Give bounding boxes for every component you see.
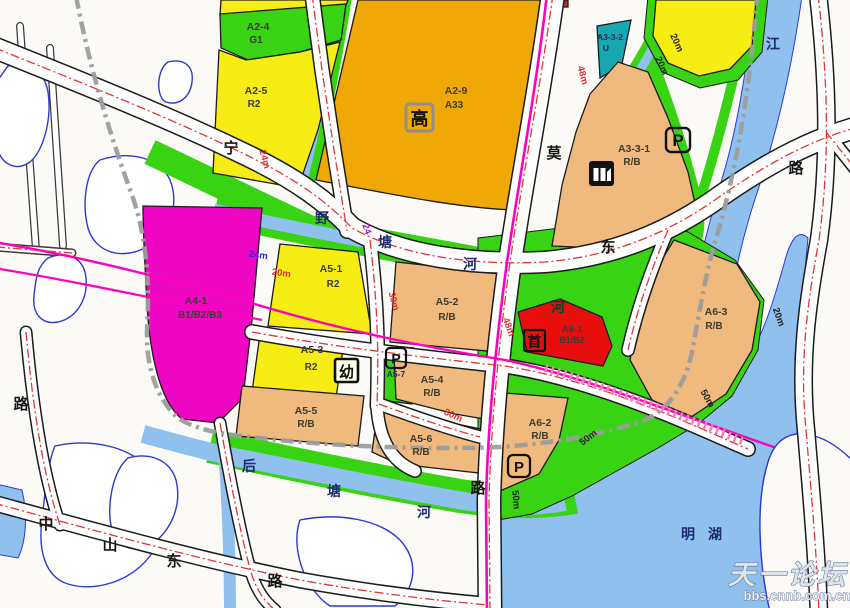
kindergarten-icon: 幼 xyxy=(335,359,358,382)
river-name-char: 河 xyxy=(551,299,565,315)
svg-text:P: P xyxy=(672,131,683,150)
parcel-use: R2 xyxy=(327,279,340,290)
parcel-label: A4-1 xyxy=(185,295,208,307)
lake-name-char: 明 xyxy=(681,526,695,542)
road-name-char: 路 xyxy=(788,159,804,177)
river-name-char: 野 xyxy=(315,210,329,226)
parcel-use: R/B xyxy=(423,388,440,399)
river-name-char: 塘 xyxy=(327,483,341,499)
parcel-label: A6-2 xyxy=(529,417,552,429)
road-name-char: 东 xyxy=(166,552,181,570)
parcel-use: R2 xyxy=(248,99,261,110)
parcel-label: A5-7 xyxy=(387,369,406,379)
road-name-char: 莫 xyxy=(546,144,562,162)
parcel-label: A3-3-2 xyxy=(597,32,623,42)
watermark-site-name: 天一论坛 xyxy=(728,560,848,590)
map-canvas: 高 P 幼 P 首 P A2-4 G1 xyxy=(0,0,850,608)
parcel-label: A2-5 xyxy=(245,85,268,97)
parcel-use: R/B xyxy=(705,321,722,332)
parcel-label: A6-3 xyxy=(705,306,728,318)
parcel-label: A5-5 xyxy=(295,405,318,417)
road-name-char: 路 xyxy=(470,479,486,497)
parcel-use: R/B xyxy=(438,312,455,323)
svg-text:高: 高 xyxy=(411,108,429,129)
river-name-char: 江 xyxy=(766,36,780,52)
svg-text:P: P xyxy=(391,351,400,367)
parcel-use: B1/B2 xyxy=(559,335,585,345)
svg-text:P: P xyxy=(514,459,524,476)
parcel-label: A5-4 xyxy=(421,374,444,386)
parcel-label: A2-9 xyxy=(445,85,468,97)
parcel-use: B1/B2/B3 xyxy=(178,310,222,321)
parcel-use: R/B xyxy=(412,447,429,458)
river-name-char: 后 xyxy=(242,458,256,474)
parcel-label: A2-4 xyxy=(247,21,270,33)
svg-text:首: 首 xyxy=(528,334,542,350)
parcel-use: G1 xyxy=(249,35,263,46)
parcel-label: A5-2 xyxy=(436,296,459,308)
river-name-char: 塘 xyxy=(378,234,392,250)
parcel-label: A5-3 xyxy=(301,344,324,356)
parcel-use: R/B xyxy=(623,157,640,168)
parcel-use: R2 xyxy=(305,362,318,373)
road-name-char: 路 xyxy=(13,395,29,413)
width-marker: 50m xyxy=(509,490,522,510)
watermark-site-url: bbs.cnnb.com.cn xyxy=(744,588,850,603)
watermark: 天一论坛 bbs.cnnb.com.cn xyxy=(728,560,850,603)
parcel-label: A6-1 xyxy=(562,324,583,335)
parcel-use: R/B xyxy=(531,431,548,442)
parcel-use: U xyxy=(603,43,609,53)
lake-name-char: 湖 xyxy=(708,526,722,542)
parcel-label: A5-1 xyxy=(320,263,343,275)
water-patch-left xyxy=(0,484,25,558)
transit-station-icon xyxy=(589,161,614,186)
parcel-use: R/B xyxy=(297,419,314,430)
road-name-char: 东 xyxy=(600,238,615,256)
parcel-a5-1 xyxy=(268,244,372,334)
svg-text:幼: 幼 xyxy=(339,363,354,381)
road-name-char: 路 xyxy=(267,572,283,590)
planning-map: 高 P 幼 P 首 P A2-4 G1 xyxy=(0,0,850,608)
road-name-char: 中 xyxy=(38,515,53,533)
parcel-label: A5-6 xyxy=(410,433,433,445)
river-name-char: 河 xyxy=(417,504,431,520)
parcel-label: A3-3-1 xyxy=(618,143,650,155)
road-name-char: 宁 xyxy=(223,139,238,157)
parcel-use: A33 xyxy=(445,100,464,111)
road-name-char: 山 xyxy=(102,537,117,554)
river-name-char: 河 xyxy=(463,256,477,272)
